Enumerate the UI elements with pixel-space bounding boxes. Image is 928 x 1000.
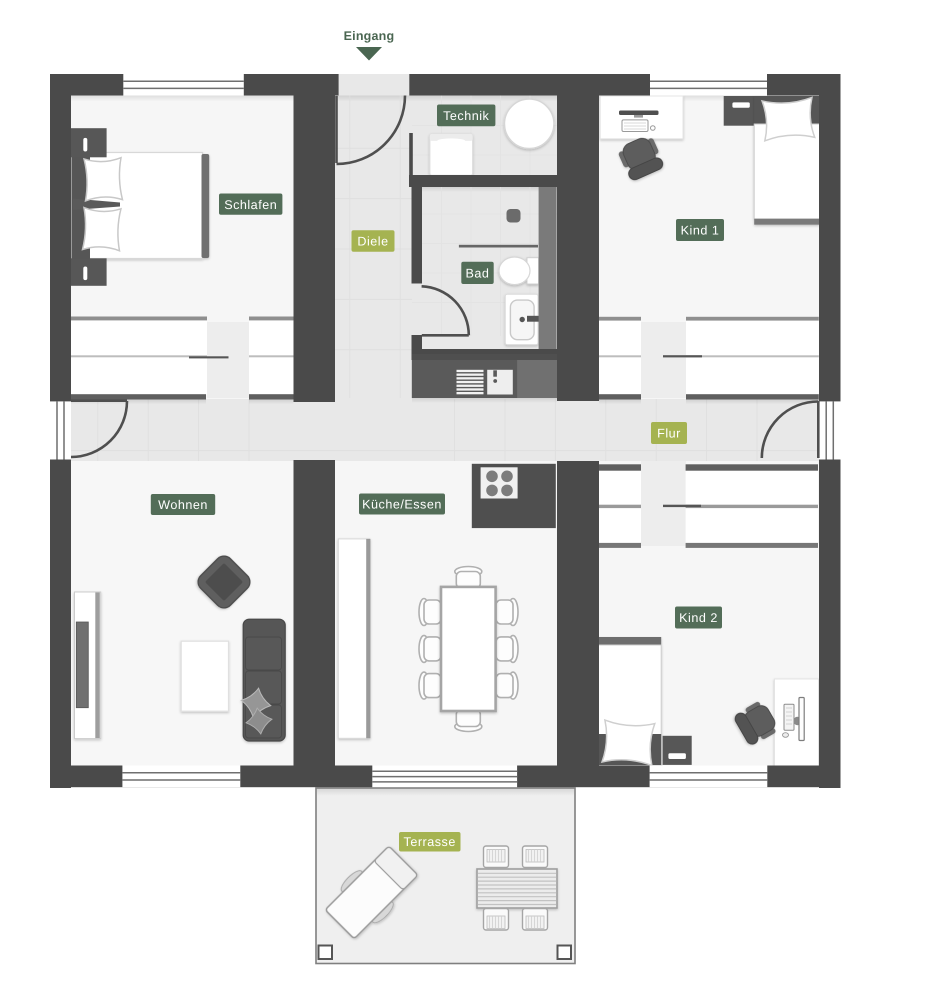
svg-text:Schlafen: Schlafen — [224, 198, 277, 212]
svg-text:Wohnen: Wohnen — [158, 498, 208, 512]
svg-text:Bad: Bad — [466, 267, 490, 281]
svg-text:Eingang: Eingang — [344, 29, 395, 43]
svg-text:Kind 2: Kind 2 — [679, 611, 718, 625]
svg-text:Diele: Diele — [357, 235, 388, 249]
svg-text:Küche/Essen: Küche/Essen — [362, 498, 442, 512]
svg-text:Technik: Technik — [443, 109, 489, 123]
svg-text:Flur: Flur — [657, 427, 681, 441]
svg-text:Terrasse: Terrasse — [404, 835, 456, 849]
svg-text:Kind 1: Kind 1 — [681, 224, 720, 238]
